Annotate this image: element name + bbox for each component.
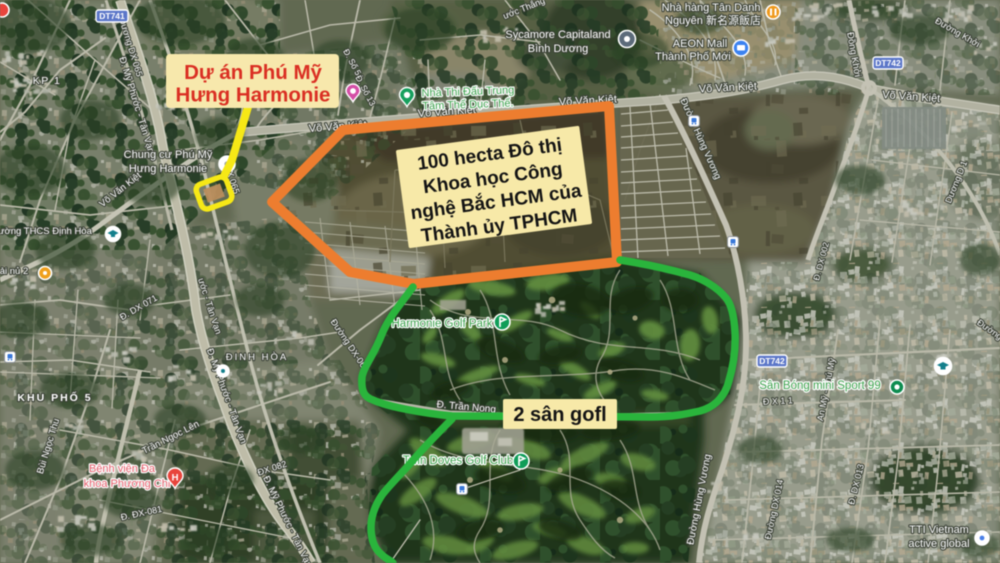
svg-text:ường THCS Định Hòa: ường THCS Định Hòa [0,226,93,237]
svg-text:AEON Mall: AEON Mall [673,38,727,50]
svg-text:Nhà hàng Tân Danh: Nhà hàng Tân Danh [662,2,761,14]
svg-text:DT742: DT742 [875,58,901,68]
svg-text:Thành Phố Mới: Thành Phố Mới [655,51,731,63]
svg-text:ĐINH HÒA: ĐINH HÒA [226,352,288,363]
svg-text:Sycamore Capitaland: Sycamore Capitaland [505,29,610,41]
svg-text:Bình Dương: Bình Dương [528,43,588,55]
svg-text:Hưng Harmonie: Hưng Harmonie [176,84,331,107]
svg-text:Harmonie Golf Park: Harmonie Golf Park [392,318,493,330]
svg-text:Đ X 1 1: Đ X 1 1 [763,395,793,407]
svg-text:Sân Bóng mini Sport 99: Sân Bóng mini Sport 99 [759,380,880,392]
svg-text:Bệnh viện Đa: Bệnh viện Đa [89,463,156,475]
svg-text:ải nủ 2: ải nủ 2 [0,266,28,277]
svg-text:active global: active global [908,538,969,550]
svg-text:TTI Vietnam: TTI Vietnam [909,524,969,536]
svg-text:KHU PHỐ 5: KHU PHỐ 5 [17,390,92,404]
svg-text:H: H [172,473,179,484]
svg-text:Dự án Phú Mỹ: Dự án Phú Mỹ [184,61,322,84]
svg-text:Chung cư Phú Mỹ: Chung cư Phú Mỹ [124,149,213,161]
svg-text:Nguyên 新名源飯店: Nguyên 新名源飯店 [665,13,761,27]
svg-text:khoa Phương Chi: khoa Phương Chi [84,478,171,490]
svg-text:DT741: DT741 [99,11,125,21]
svg-text:DT742: DT742 [759,356,785,366]
svg-text:KP 1: KP 1 [33,75,62,87]
svg-text:Hưng Harmonie: Hưng Harmonie [129,163,207,175]
svg-text:2 sân gofl: 2 sân gofl [513,404,606,426]
